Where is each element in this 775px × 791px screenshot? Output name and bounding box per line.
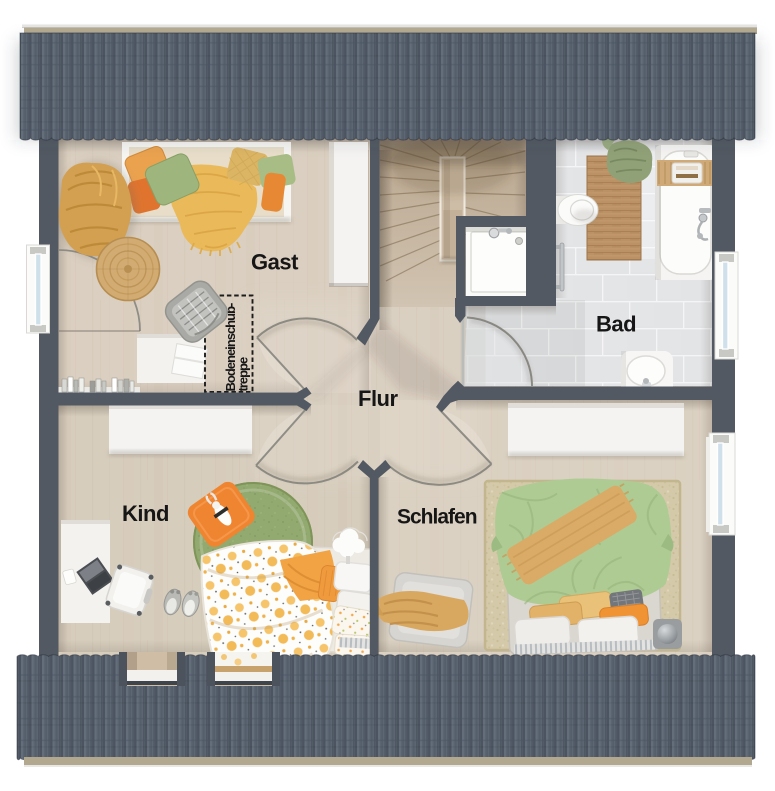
svg-text:Gast: Gast xyxy=(251,250,299,275)
svg-text:treppe: treppe xyxy=(236,357,251,392)
svg-text:Kind: Kind xyxy=(122,501,169,526)
svg-text:Schlafen: Schlafen xyxy=(397,506,477,529)
svg-text:Bad: Bad xyxy=(596,312,636,337)
svg-text:Flur: Flur xyxy=(358,386,398,411)
